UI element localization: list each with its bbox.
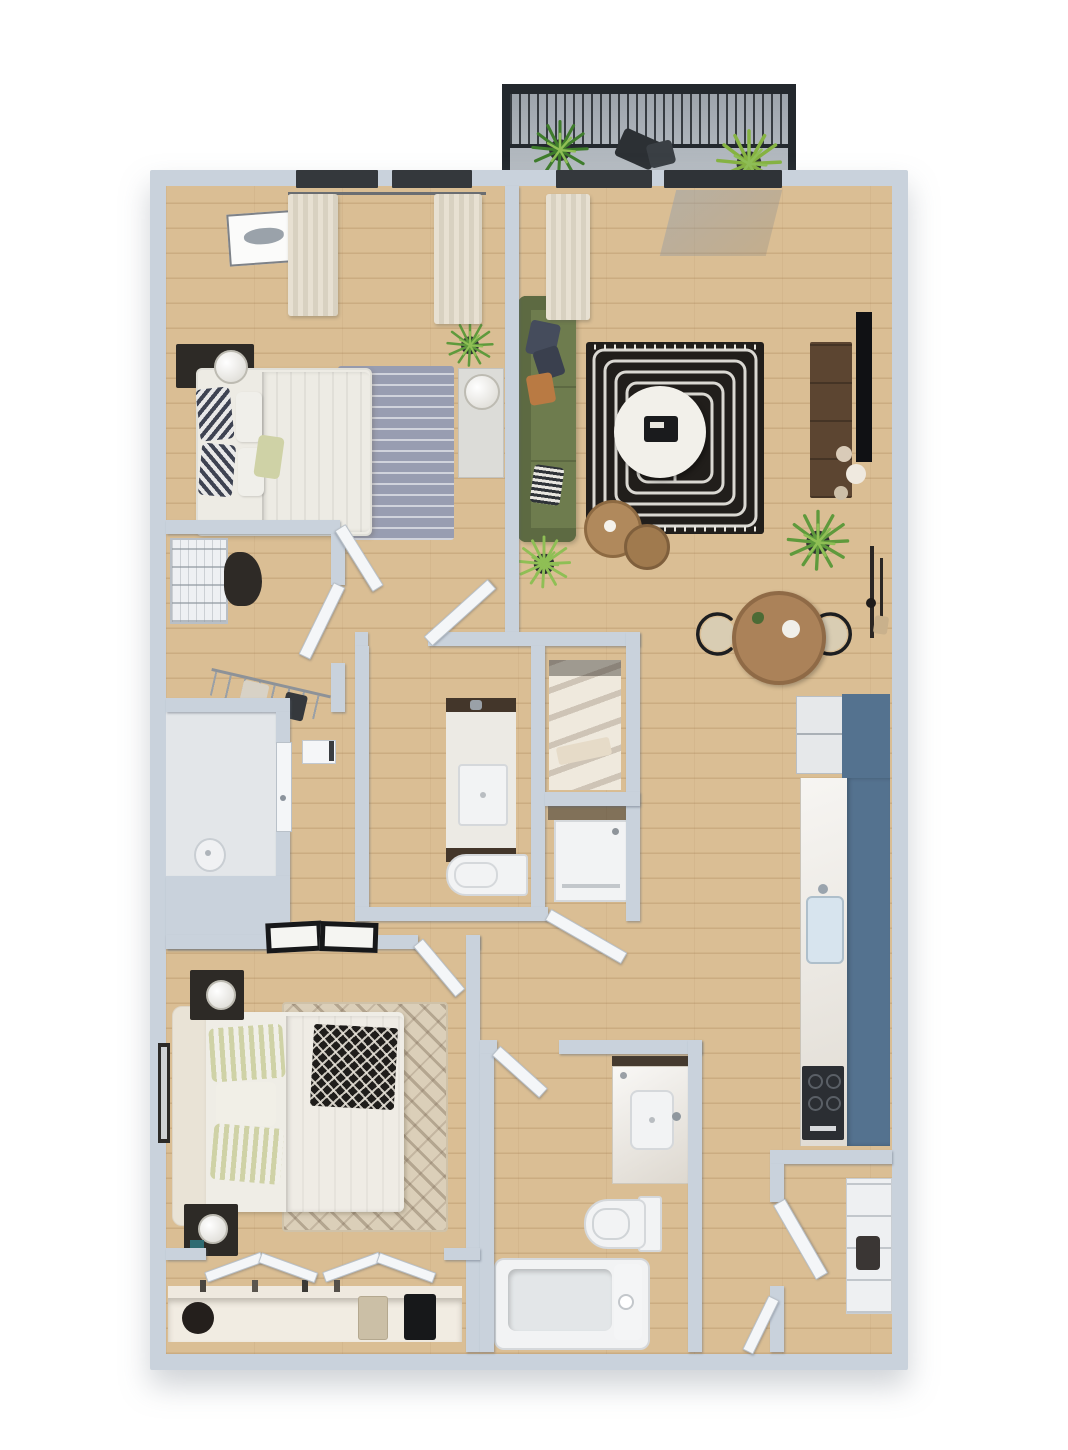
toiletry-bottle — [334, 1280, 340, 1292]
wall — [505, 186, 519, 632]
folded-towels — [556, 737, 613, 766]
bed2-pillow — [216, 1082, 276, 1126]
burner — [826, 1096, 841, 1111]
potted-plant-icon — [781, 501, 855, 575]
window — [392, 170, 472, 188]
balcony — [502, 84, 796, 178]
utility-door-closed — [276, 742, 292, 832]
candle — [604, 520, 616, 532]
wall — [276, 712, 290, 742]
toilet-seat-line — [454, 862, 498, 888]
wall — [355, 907, 548, 921]
dining-table — [732, 591, 826, 685]
window — [296, 170, 378, 188]
wall — [166, 698, 290, 712]
soap-item — [620, 1072, 627, 1079]
ceiling-light — [265, 921, 322, 954]
window — [556, 170, 652, 188]
wall — [770, 1286, 784, 1352]
bedroom2-wall-art — [158, 1043, 170, 1143]
burner — [808, 1074, 823, 1089]
wall — [545, 792, 640, 806]
tub-drain-icon — [618, 1294, 634, 1310]
shelf-shadow — [549, 660, 621, 676]
wall — [770, 1164, 784, 1202]
curtain — [546, 194, 590, 320]
faucet-icon — [672, 1112, 681, 1121]
bed1-pillow-zigzag — [195, 386, 234, 441]
wall — [466, 935, 480, 1352]
tub-basin — [508, 1269, 612, 1331]
dresser-lamp-icon — [464, 374, 500, 410]
bathtub — [494, 1258, 650, 1350]
burner — [826, 1074, 841, 1089]
door-handle-icon — [280, 795, 286, 801]
curtain — [434, 194, 482, 324]
toiletry-bottle — [252, 1280, 258, 1292]
wall — [428, 632, 640, 646]
bath1-vanity — [446, 698, 516, 862]
wall-rack — [864, 546, 890, 642]
rack-bar — [880, 558, 883, 618]
wall — [166, 1248, 206, 1260]
toiletry-bottle — [302, 1280, 308, 1292]
slider-glass — [660, 190, 782, 256]
wall — [355, 646, 369, 921]
bath2-toilet — [584, 1196, 660, 1250]
washer-door-line — [562, 884, 620, 888]
drain-icon — [480, 792, 486, 798]
vanity-backsplash — [612, 1056, 688, 1066]
balcony-railing-icon — [788, 84, 796, 178]
wire-basket-unit — [170, 538, 228, 624]
tray-item — [650, 422, 664, 428]
bath1-toilet — [446, 854, 528, 896]
table-lamp-icon — [206, 980, 236, 1010]
wall — [480, 1054, 494, 1352]
wall — [688, 1040, 702, 1352]
drain-icon — [649, 1117, 655, 1123]
hanging-garment — [358, 1296, 388, 1340]
wall — [559, 1040, 702, 1054]
kitchen-sink — [806, 896, 844, 964]
balcony-slider-door — [664, 170, 782, 188]
sofa-pillow-orange — [526, 372, 557, 406]
bed2-headboard — [172, 1006, 208, 1226]
sofa-pillow-striped — [530, 464, 565, 506]
pantry-stored-item — [856, 1236, 880, 1270]
burner — [808, 1096, 823, 1111]
floor-drain — [194, 838, 226, 872]
washer-closet-shadow — [548, 806, 626, 820]
bed1-pillow-zigzag — [198, 443, 236, 498]
fridge-door-line — [797, 733, 843, 735]
washer-dryer-unit — [554, 820, 630, 902]
wall — [531, 646, 545, 907]
panel-edge — [329, 741, 334, 761]
balcony-lounge-chair — [645, 139, 676, 169]
linen-closet-shelves — [549, 660, 621, 790]
ceiling-light — [319, 921, 378, 953]
bath1-sink — [458, 764, 508, 826]
round-hat — [182, 1302, 214, 1334]
wall — [276, 830, 290, 876]
wall — [770, 1150, 892, 1164]
table-lamp-icon — [214, 350, 248, 384]
toiletry-bottle — [200, 1280, 206, 1292]
kitchen-range — [802, 1066, 844, 1140]
decor-sphere — [836, 446, 852, 462]
rack-hook — [866, 598, 876, 608]
bed2-pillow-striped — [208, 1023, 286, 1082]
wall — [355, 632, 368, 646]
balcony-railing-icon — [502, 84, 796, 94]
wall-tv — [856, 312, 872, 462]
faucet-icon — [470, 700, 482, 710]
bed2-throw-blanket — [310, 1024, 398, 1110]
wall — [331, 663, 345, 712]
thermostat-panel — [302, 740, 336, 764]
refrigerator — [796, 696, 844, 774]
table-plate — [782, 620, 800, 638]
oven-handle — [810, 1126, 836, 1131]
art-inner — [161, 1047, 167, 1139]
balcony-railing-icon — [502, 84, 510, 178]
decor-sphere — [834, 486, 848, 500]
floor-plan-scene — [0, 0, 1068, 1450]
washer-knob — [612, 828, 619, 835]
side-table — [624, 524, 670, 570]
hanging-garment — [404, 1294, 436, 1340]
coffee-table-tray — [644, 416, 678, 442]
sofa-cushion-seam — [531, 460, 576, 462]
art-print — [243, 227, 284, 246]
decor-sphere — [846, 464, 866, 484]
toilet-seat-line — [592, 1208, 630, 1240]
bed1-pillow — [236, 392, 262, 442]
bath2-vanity — [612, 1056, 688, 1182]
wall — [444, 1248, 480, 1260]
bath2-sink — [630, 1090, 674, 1150]
kitchen-upper-cabinet-run — [846, 778, 890, 1146]
kitchen-upper-cabinet-corner — [842, 694, 890, 778]
potted-plant-icon — [512, 528, 576, 592]
curtain — [288, 194, 338, 316]
wall — [166, 520, 340, 534]
faucet-icon — [818, 884, 828, 894]
drain-dot — [205, 850, 211, 856]
bed2-pillow-striped — [210, 1123, 285, 1185]
hanging-bag — [873, 615, 889, 635]
wall — [626, 632, 640, 921]
